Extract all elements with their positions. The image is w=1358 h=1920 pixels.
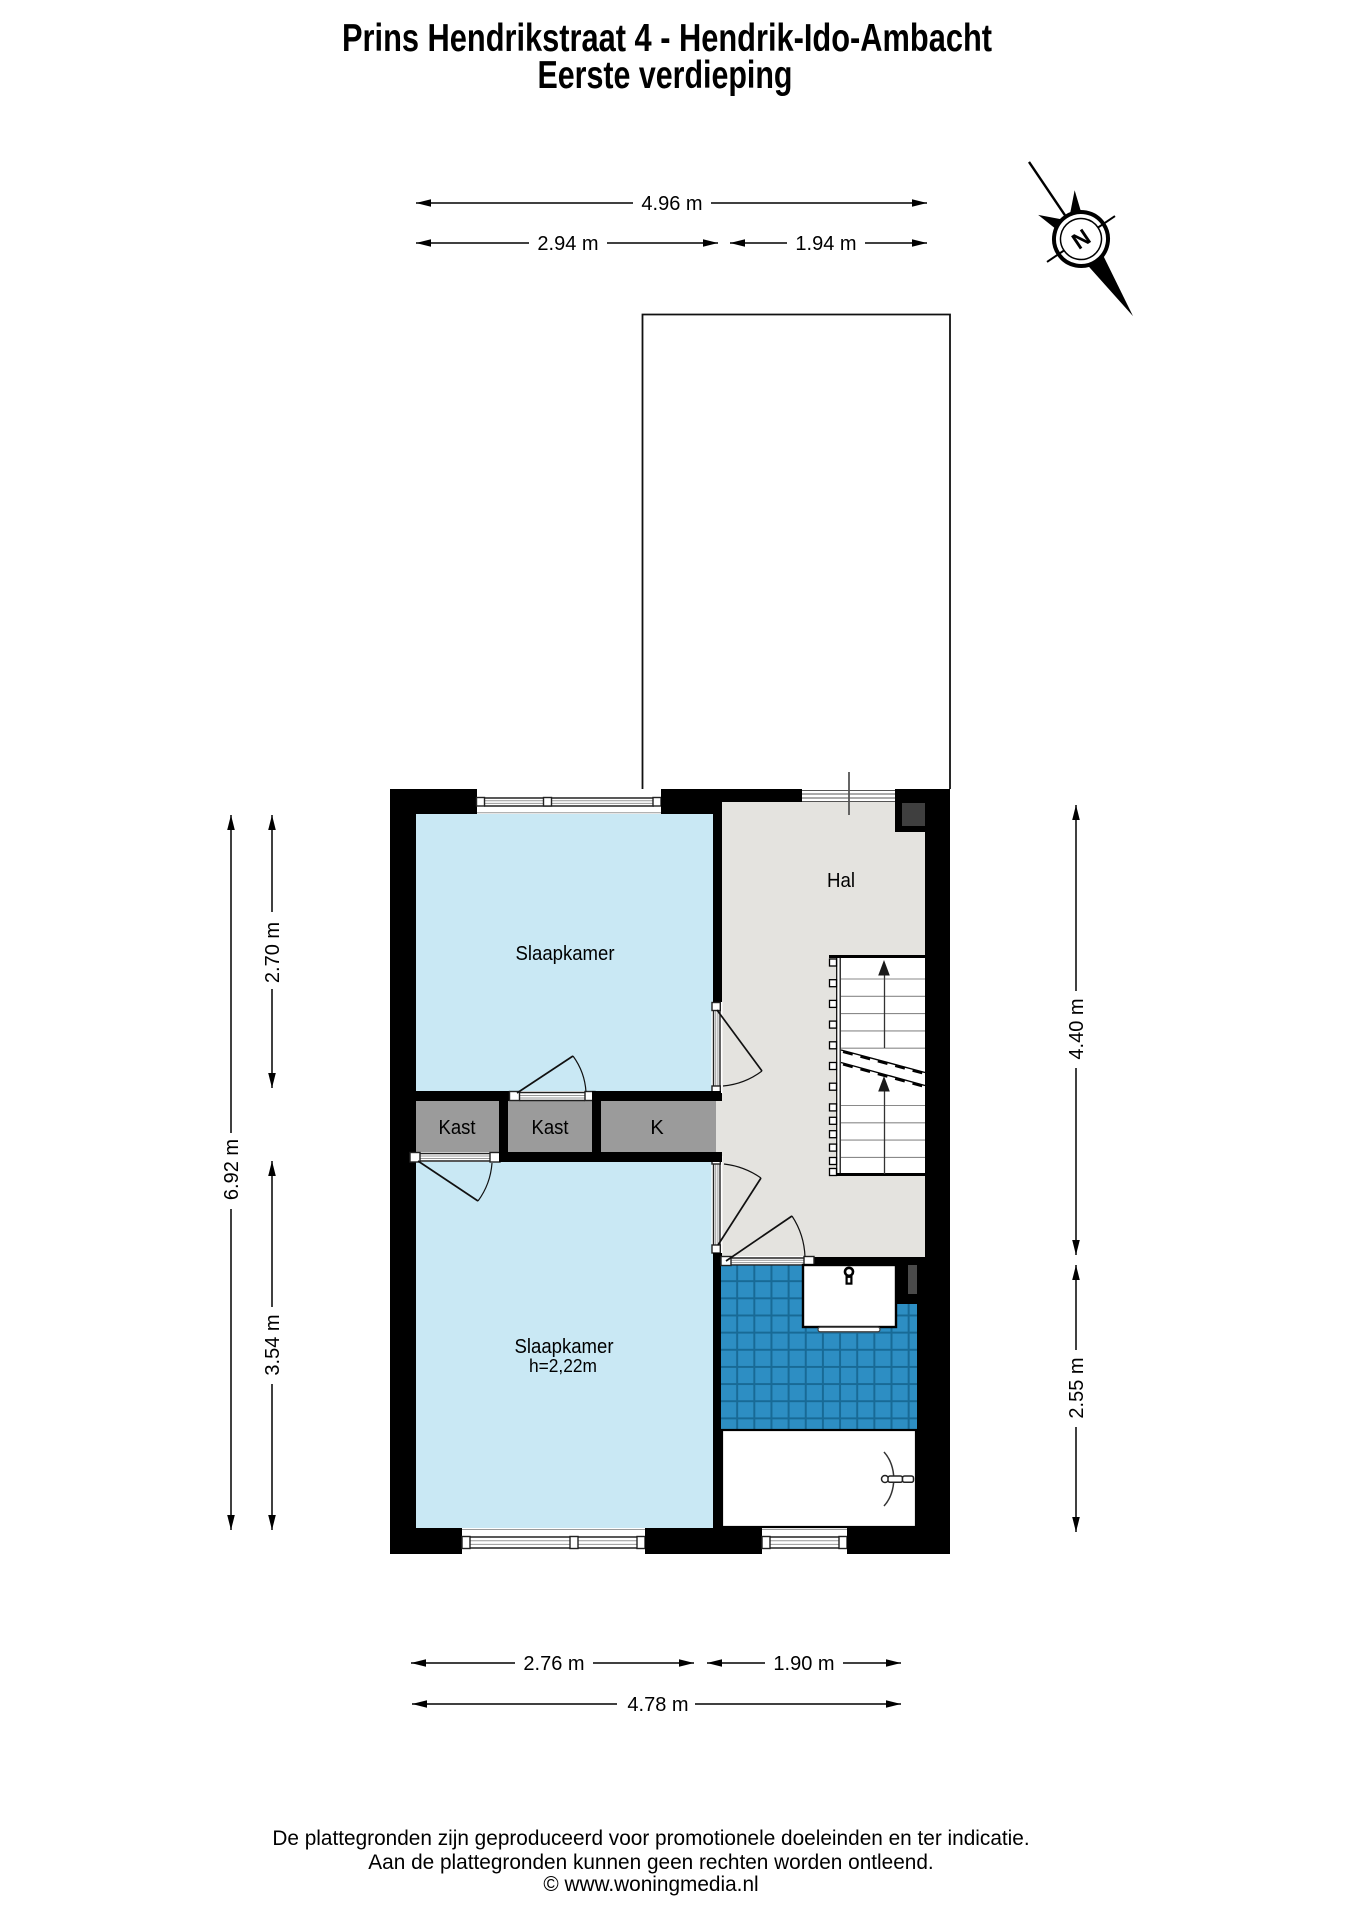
svg-text:6.92 m: 6.92 m (221, 1139, 243, 1200)
svg-text:Kast: Kast (532, 1117, 569, 1139)
svg-text:© www.woningmedia.nl: © www.woningmedia.nl (543, 1873, 758, 1896)
svg-text:2.94 m: 2.94 m (537, 233, 598, 255)
svg-text:Slaapkamer: Slaapkamer (515, 1336, 614, 1358)
svg-text:Eerste verdieping: Eerste verdieping (538, 54, 793, 97)
svg-text:2.55 m: 2.55 m (1066, 1357, 1088, 1418)
svg-text:Hal: Hal (827, 870, 855, 892)
svg-text:2.76 m: 2.76 m (523, 1653, 584, 1675)
svg-text:3.54 m: 3.54 m (262, 1314, 284, 1375)
svg-text:2.70 m: 2.70 m (262, 922, 284, 983)
svg-text:Kast: Kast (439, 1117, 476, 1139)
svg-text:K: K (650, 1117, 664, 1139)
svg-text:Aan de plattegronden kunnen ge: Aan de plattegronden kunnen geen rechten… (368, 1851, 933, 1874)
svg-text:Slaapkamer: Slaapkamer (516, 943, 615, 965)
svg-text:4.78 m: 4.78 m (627, 1694, 688, 1716)
svg-text:1.90 m: 1.90 m (773, 1653, 834, 1675)
svg-text:1.94 m: 1.94 m (795, 233, 856, 255)
svg-text:4.96 m: 4.96 m (641, 193, 702, 215)
svg-text:4.40 m: 4.40 m (1066, 998, 1088, 1059)
svg-text:h=2,22m: h=2,22m (529, 1356, 597, 1376)
svg-text:De plattegronden zijn geproduc: De plattegronden zijn geproduceerd voor … (272, 1827, 1029, 1850)
